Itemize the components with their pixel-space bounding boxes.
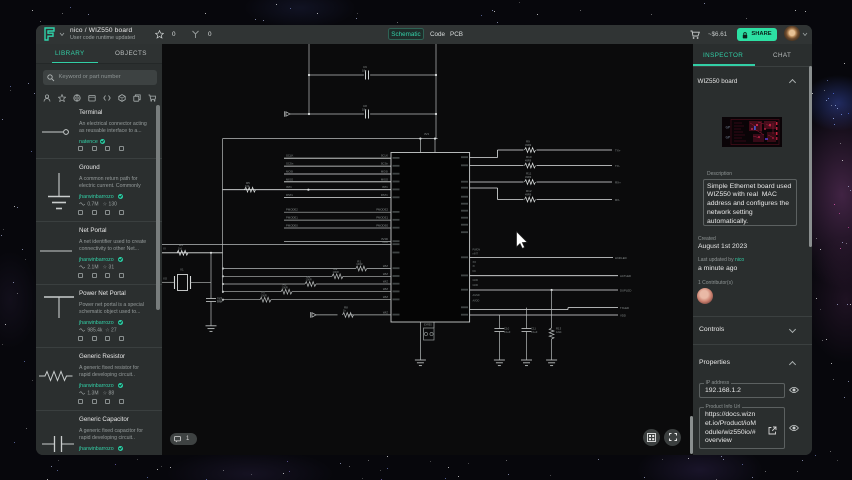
- svg-text:10k: 10k: [245, 184, 250, 188]
- svg-text:PMODE0: PMODE0: [286, 224, 298, 228]
- svg-text:R4: R4: [179, 243, 183, 247]
- svg-text:100R: 100R: [356, 262, 362, 266]
- svg-text:AGND: AGND: [473, 294, 480, 297]
- svg-text:WIZ: WIZ: [383, 272, 388, 276]
- svg-text:18p: 18p: [362, 108, 367, 112]
- svg-text:NC: NC: [473, 270, 477, 273]
- svg-text:SCLK: SCLK: [381, 154, 388, 158]
- svg-text:C10: C10: [504, 327, 510, 331]
- svg-text:VDD: VDD: [620, 313, 626, 317]
- svg-text:GND: GND: [473, 284, 479, 287]
- svg-text:0.1uF: 0.1uF: [531, 331, 538, 334]
- svg-text:WIZ: WIZ: [383, 287, 388, 291]
- svg-text:100R: 100R: [261, 293, 267, 297]
- svg-text:100R: 100R: [306, 278, 312, 282]
- svg-text:ACTLED: ACTLED: [620, 274, 631, 278]
- svg-text:SCSn: SCSn: [381, 162, 389, 166]
- svg-text:SCLK: SCLK: [286, 154, 293, 158]
- svg-text:GP: GP: [726, 137, 731, 141]
- svg-text:PMODE0: PMODE0: [376, 224, 388, 228]
- svg-text:XO: XO: [163, 276, 168, 280]
- svg-text:LINKLED: LINKLED: [615, 256, 627, 260]
- svg-text:VCC: VCC: [382, 240, 388, 244]
- svg-text:INTn: INTn: [382, 185, 389, 189]
- svg-text:GP: GP: [726, 127, 731, 131]
- svg-text:100R: 100R: [333, 270, 339, 274]
- svg-text:18p: 18p: [362, 69, 367, 73]
- svg-text:MOSI: MOSI: [286, 170, 293, 174]
- svg-text:TX-: TX-: [615, 164, 620, 168]
- svg-text:SCSn: SCSn: [286, 162, 294, 166]
- svg-text:WIZ: WIZ: [383, 280, 388, 284]
- svg-text:PMODE2: PMODE2: [286, 208, 298, 212]
- svg-text:X1: X1: [180, 268, 184, 272]
- svg-text:C8: C8: [363, 104, 367, 108]
- svg-text:GND: GND: [473, 279, 479, 282]
- svg-text:R13: R13: [556, 327, 562, 331]
- svg-text:LED: LED: [217, 299, 222, 303]
- svg-text:C9: C9: [363, 65, 367, 69]
- svg-text:3V3: 3V3: [424, 132, 429, 136]
- svg-text:TXLED: TXLED: [620, 306, 629, 310]
- svg-text:RX-: RX-: [615, 198, 620, 202]
- svg-text:WIZ: WIZ: [383, 264, 388, 268]
- svg-text:49R9: 49R9: [525, 158, 532, 162]
- svg-text:PWDN: PWDN: [473, 249, 481, 252]
- svg-text:RSTn: RSTn: [286, 193, 294, 197]
- svg-text:EXRES: EXRES: [424, 325, 432, 327]
- svg-text:PMODE1: PMODE1: [286, 216, 298, 220]
- svg-text:INTn: INTn: [286, 185, 293, 189]
- svg-text:1M: 1M: [178, 247, 182, 251]
- svg-text:AVDD: AVDD: [473, 300, 480, 303]
- svg-text:TX+: TX+: [615, 148, 621, 152]
- svg-text:PMODE1: PMODE1: [376, 216, 388, 220]
- svg-text:DUPLED: DUPLED: [620, 288, 631, 292]
- svg-text:0.1uF: 0.1uF: [504, 331, 511, 334]
- svg-text:MISO: MISO: [286, 177, 294, 181]
- svg-text:WIZ: WIZ: [383, 295, 388, 299]
- svg-text:PMODE2: PMODE2: [376, 208, 388, 212]
- svg-text:100R: 100R: [282, 285, 288, 289]
- svg-text:XI: XI: [473, 265, 476, 268]
- svg-text:MISO: MISO: [381, 177, 389, 181]
- svg-text:MOSI: MOSI: [381, 170, 388, 174]
- svg-text:49R9: 49R9: [525, 143, 532, 147]
- svg-text:WIZ: WIZ: [383, 310, 388, 314]
- svg-text:49R9: 49R9: [525, 175, 532, 179]
- svg-text:C11: C11: [531, 327, 536, 331]
- svg-text:nINT: nINT: [473, 253, 479, 256]
- svg-text:RX+: RX+: [615, 180, 621, 184]
- svg-text:49R9: 49R9: [525, 192, 532, 196]
- svg-text:RSTn: RSTn: [381, 193, 389, 197]
- svg-text:XI: XI: [163, 247, 166, 251]
- svg-text:12k4: 12k4: [556, 331, 562, 334]
- svg-text:XO: XO: [473, 261, 477, 264]
